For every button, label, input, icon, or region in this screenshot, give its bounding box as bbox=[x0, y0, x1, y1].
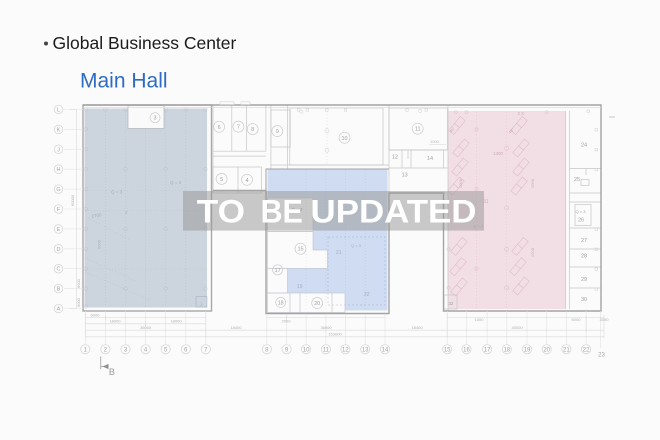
svg-text:29: 29 bbox=[581, 277, 587, 283]
svg-text:20: 20 bbox=[543, 347, 550, 353]
svg-text:10: 10 bbox=[341, 136, 347, 142]
svg-text:11: 11 bbox=[323, 347, 330, 353]
svg-text:14: 14 bbox=[382, 347, 389, 353]
svg-text:28: 28 bbox=[581, 254, 587, 260]
svg-text:UPDATED: UPDATED bbox=[311, 195, 477, 230]
svg-text:6000: 6000 bbox=[76, 278, 81, 288]
svg-text:6000: 6000 bbox=[572, 317, 582, 322]
svg-text:BE: BE bbox=[261, 194, 303, 230]
svg-text:6000: 6000 bbox=[459, 179, 464, 189]
svg-text:27: 27 bbox=[581, 238, 587, 244]
svg-text:7: 7 bbox=[237, 125, 240, 131]
svg-text:1300: 1300 bbox=[493, 151, 504, 156]
svg-text:11: 11 bbox=[415, 127, 421, 133]
svg-text:Q = 3: Q = 3 bbox=[351, 243, 362, 248]
svg-text:Global Business Center: Global Business Center bbox=[53, 33, 237, 53]
svg-text:16: 16 bbox=[463, 347, 470, 353]
svg-text:2 3: 2 3 bbox=[518, 111, 525, 116]
svg-text:3: 3 bbox=[153, 116, 156, 122]
svg-text:12: 12 bbox=[342, 347, 349, 353]
svg-text:D: D bbox=[57, 247, 61, 253]
svg-text:19: 19 bbox=[297, 284, 303, 290]
svg-text:6000: 6000 bbox=[531, 179, 536, 189]
svg-text:30: 30 bbox=[581, 297, 587, 303]
svg-text:TO: TO bbox=[197, 195, 245, 230]
svg-text:6000: 6000 bbox=[97, 240, 102, 250]
svg-text:B: B bbox=[57, 287, 61, 293]
svg-text:6000: 6000 bbox=[76, 297, 81, 307]
svg-text:Main Hall: Main Hall bbox=[80, 70, 168, 93]
svg-text:A: A bbox=[57, 307, 61, 313]
svg-text:24: 24 bbox=[581, 143, 587, 149]
svg-text:L: L bbox=[57, 108, 60, 114]
svg-text:1000: 1000 bbox=[475, 317, 485, 322]
svg-text:B: B bbox=[109, 367, 115, 377]
svg-text:18: 18 bbox=[278, 300, 284, 306]
svg-text:18: 18 bbox=[503, 347, 510, 353]
svg-text:153000: 153000 bbox=[328, 332, 342, 337]
svg-text:8: 8 bbox=[251, 127, 254, 133]
svg-text:13: 13 bbox=[402, 173, 408, 179]
svg-text:9: 9 bbox=[276, 129, 279, 135]
svg-text:6000: 6000 bbox=[531, 248, 536, 258]
svg-text:18000: 18000 bbox=[170, 319, 182, 324]
svg-text:32: 32 bbox=[448, 301, 454, 306]
svg-text:15: 15 bbox=[444, 347, 451, 353]
svg-text:J: J bbox=[57, 147, 60, 153]
svg-text:Q = 3: Q = 3 bbox=[170, 180, 182, 185]
svg-text:E: E bbox=[57, 227, 61, 233]
svg-text:45000: 45000 bbox=[511, 325, 523, 330]
svg-text:21: 21 bbox=[336, 250, 342, 256]
svg-text:19: 19 bbox=[524, 347, 531, 353]
svg-text:Q = 3: Q = 3 bbox=[111, 190, 123, 195]
svg-text:20: 20 bbox=[314, 301, 320, 307]
svg-text:13: 13 bbox=[362, 347, 369, 353]
svg-text:17: 17 bbox=[484, 347, 491, 353]
svg-text:26: 26 bbox=[578, 218, 584, 224]
svg-text:1000: 1000 bbox=[430, 139, 440, 144]
svg-text:6: 6 bbox=[218, 125, 221, 131]
svg-text:22: 22 bbox=[364, 292, 370, 298]
svg-text:22: 22 bbox=[583, 347, 590, 353]
svg-text:36000: 36000 bbox=[320, 325, 332, 330]
svg-text:15: 15 bbox=[297, 247, 303, 253]
svg-text:K: K bbox=[57, 127, 61, 133]
svg-text:6000: 6000 bbox=[91, 312, 101, 317]
svg-text:3000: 3000 bbox=[600, 317, 610, 322]
svg-text:Q = 3: Q = 3 bbox=[576, 209, 587, 214]
svg-text:12: 12 bbox=[392, 155, 398, 161]
svg-text:2000: 2000 bbox=[282, 319, 292, 324]
svg-text:25: 25 bbox=[574, 177, 580, 183]
svg-text:4: 4 bbox=[245, 178, 248, 184]
svg-text:18000: 18000 bbox=[109, 319, 121, 324]
svg-text:10: 10 bbox=[303, 347, 310, 353]
svg-text:C: C bbox=[57, 267, 61, 273]
svg-text:G: G bbox=[56, 187, 60, 193]
svg-text:36000: 36000 bbox=[140, 325, 152, 330]
svg-text:60000: 60000 bbox=[70, 194, 75, 206]
svg-text:5: 5 bbox=[220, 177, 223, 183]
svg-text:14: 14 bbox=[427, 156, 433, 162]
svg-text:23: 23 bbox=[598, 353, 605, 359]
svg-text:H: H bbox=[57, 167, 61, 173]
svg-text:18400: 18400 bbox=[230, 325, 242, 330]
svg-text:18400: 18400 bbox=[411, 325, 423, 330]
svg-text:17: 17 bbox=[275, 268, 281, 274]
svg-text:21: 21 bbox=[563, 347, 570, 353]
